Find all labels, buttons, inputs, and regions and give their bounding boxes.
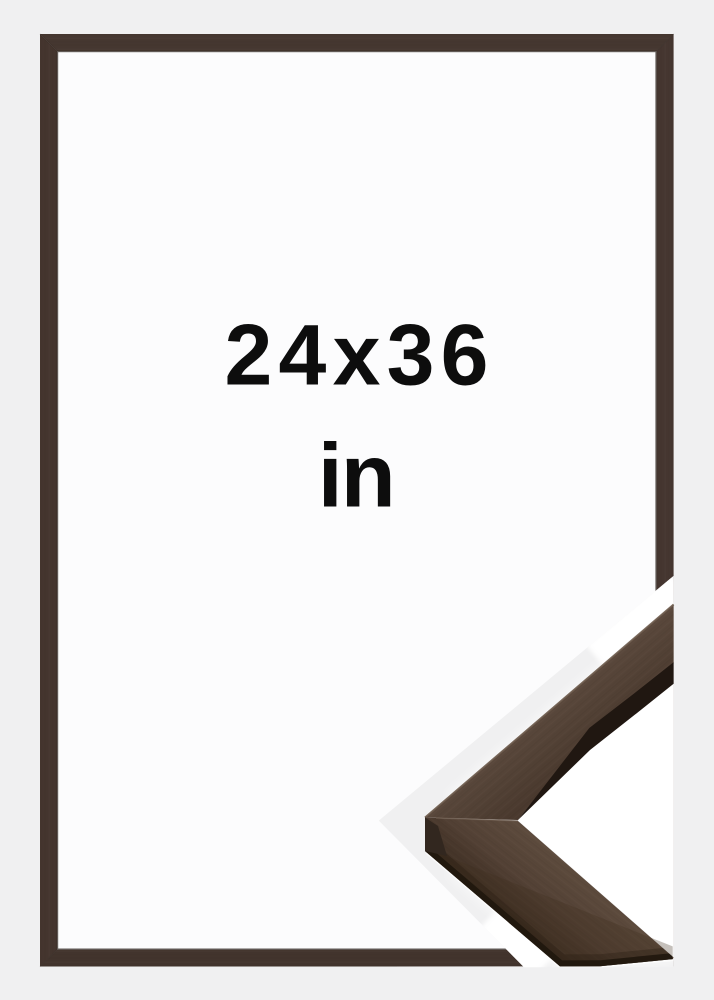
svg-text:24x36: 24x36 [225,308,495,404]
svg-text:in: in [318,427,394,527]
